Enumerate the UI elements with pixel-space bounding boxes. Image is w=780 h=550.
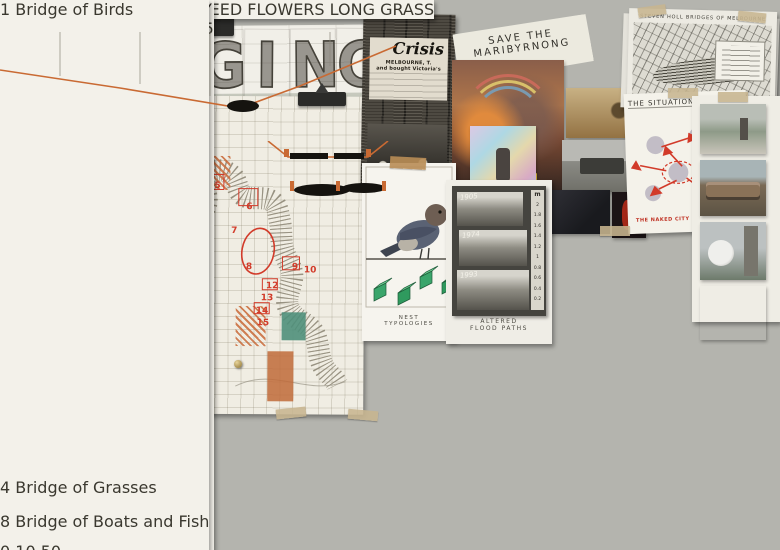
gauge-unit-label: m xyxy=(534,190,540,201)
tape xyxy=(276,406,307,419)
site-number: 12 xyxy=(266,281,279,291)
bridge-number-badge: 4 xyxy=(0,478,10,497)
site-number: 10 xyxy=(304,265,317,275)
gauge-tick-label: 1.8 xyxy=(534,211,541,222)
site-photo-garden xyxy=(700,104,766,154)
birds-bridge-profile xyxy=(0,24,408,144)
caption-line: FLOOD PATHS xyxy=(448,325,550,332)
bridge-number-badge: 1 xyxy=(0,0,10,19)
scale-labels: 0 10 50 xyxy=(0,542,209,550)
tape xyxy=(600,226,630,236)
gauge-scale: m21.81.61.41.210.80.60.40.2 xyxy=(531,190,544,310)
site-number: 9 xyxy=(292,262,298,272)
bridge-drawings-sheet: 1 Bridge of Birds 4 Bridge of Grasses xyxy=(0,0,209,550)
pinboard: BRIDGING GRASSLAND MUD FLOOD WETLANDS xyxy=(0,0,780,550)
gauge-tick-label: 0.2 xyxy=(534,295,541,306)
gauge-tick-label: 0.8 xyxy=(534,264,541,275)
boat-hull xyxy=(706,182,760,200)
grasses-deck xyxy=(0,503,160,512)
tape xyxy=(348,409,379,422)
caption-line: ALTERED xyxy=(448,318,550,325)
site-photo-boathouse xyxy=(700,160,766,216)
grasses-supports xyxy=(238,141,398,171)
boat-hulls xyxy=(278,181,398,207)
bridge-tower xyxy=(0,262,209,318)
city-map-drawing xyxy=(632,22,772,98)
figure xyxy=(496,148,510,182)
orange-patch xyxy=(267,351,293,401)
bridge-label-row: 1 Bridge of Birds xyxy=(0,0,209,19)
bridge-number-badge: 8 xyxy=(0,512,10,531)
map-legend-box xyxy=(714,40,765,81)
bridge-name: Bridge of Grasses xyxy=(15,478,156,497)
flood-year: 1905 xyxy=(460,192,479,202)
bridge-tower xyxy=(0,318,209,368)
scale-label: 0 xyxy=(0,542,10,550)
site-number: 5 xyxy=(214,181,220,191)
flood-caption: ALTERED FLOOD PATHS xyxy=(448,318,550,332)
site-photo-strip xyxy=(692,96,780,322)
flood-history-panel: 1905 1974 1993 m21.81.61.41.210.80.60.40… xyxy=(452,186,546,316)
satellite-dish xyxy=(708,240,734,266)
botany-label: SEED FLOWERS xyxy=(199,0,324,19)
gauge-tick-label: 2 xyxy=(536,201,539,212)
gauge-tick-label: 0.6 xyxy=(534,274,541,285)
truck-shape xyxy=(580,158,624,174)
gauge-tick-label: 1.4 xyxy=(534,232,541,243)
bridge-tower xyxy=(0,447,209,478)
gauge-tick-label: 1.6 xyxy=(534,222,541,233)
bridge-tower xyxy=(0,210,209,262)
tape xyxy=(718,92,748,102)
gauge-tick-label: 1.2 xyxy=(534,243,541,254)
bridge-label-row: 8 Bridge of Boats and Fish xyxy=(0,512,209,531)
flood-year: 1993 xyxy=(460,270,479,280)
bridge-tower xyxy=(0,368,209,411)
flood-photo-1905: 1905 xyxy=(457,192,523,226)
site-number: 7 xyxy=(231,226,237,236)
figure xyxy=(740,118,748,140)
bird-card-caption: NEST TYPOLOGIES xyxy=(362,315,456,327)
site-photo-satellite-dish xyxy=(700,222,766,280)
green-patch xyxy=(282,312,306,340)
flood-photo-1993: 1993 xyxy=(457,270,529,310)
bridge-tower xyxy=(0,411,209,447)
bridge-name: Bridge of Birds xyxy=(15,0,133,19)
site-number: 8 xyxy=(246,262,252,272)
bridge-name: Bridge of Boats and Fish xyxy=(15,512,209,531)
site-number: 15 xyxy=(257,318,270,328)
site-number: 13 xyxy=(261,293,274,303)
flood-year: 1974 xyxy=(462,230,481,240)
scale-label: 50 xyxy=(41,542,61,550)
scale-label: 10 xyxy=(15,542,35,550)
botany-label: LONG GRASS xyxy=(330,0,435,19)
pin-icon xyxy=(234,360,242,368)
gauge-tick-label: 0.4 xyxy=(534,285,541,296)
bridge-tower xyxy=(0,163,209,210)
site-photo-freeway-bridge xyxy=(700,286,766,340)
bridge-pier xyxy=(744,226,758,276)
site-number: 6 xyxy=(246,202,252,212)
holl-bridges-map: STEVEN HOLL BRIDGES OF MELBOURNE xyxy=(627,8,777,104)
site-number: 14 xyxy=(256,306,269,316)
bridge-label-row: 4 Bridge of Grasses xyxy=(0,478,209,497)
caption-line: TYPOLOGIES xyxy=(362,321,456,327)
flood-photo-1974: 1974 xyxy=(459,230,527,266)
gauge-tick-label: 1 xyxy=(536,253,539,264)
